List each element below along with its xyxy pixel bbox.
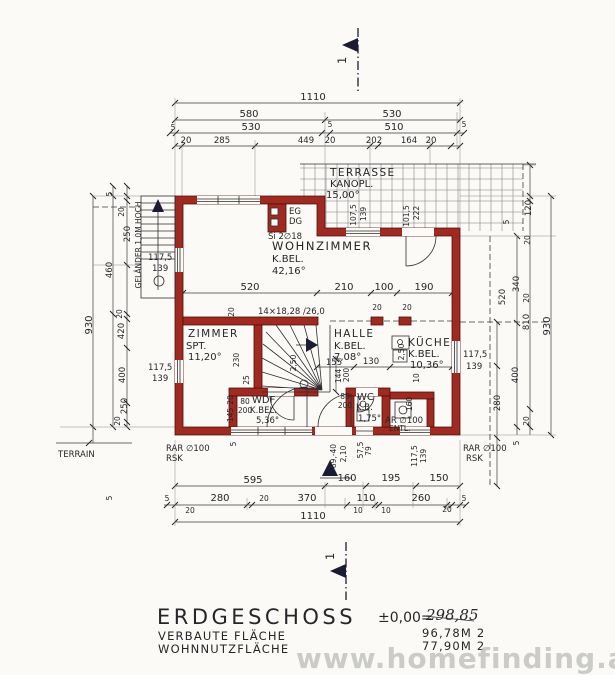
dim-label: 449 [298, 136, 314, 146]
dim-label: 5 [165, 494, 170, 503]
room-label-wohnzimmer: WOHNZIMMER [272, 239, 372, 253]
dim-label: 10 [353, 506, 363, 515]
dim-label: 210 [334, 282, 353, 293]
dim-label: 80 [340, 392, 350, 401]
dim-label: 20 [402, 303, 412, 312]
dim-label: 20 [442, 505, 452, 514]
dim-label: 530 [241, 122, 260, 133]
room-sub-wohnzimmer: K.BEL. [272, 254, 304, 265]
living-area-label: WOHNNUTZFLÄCHE [158, 641, 289, 656]
stair-direction-arrow-icon [306, 338, 318, 352]
dim-label: 460 [105, 262, 115, 278]
dim-label: 5 [462, 494, 467, 503]
railing-symbol [154, 276, 164, 286]
dim-label: 120 [524, 200, 534, 216]
dim-label: 202 [366, 136, 382, 146]
dim-label: 20 [522, 293, 531, 303]
chimney-label-dg: DG [289, 217, 302, 227]
terrain-label: TERRAIN [57, 450, 95, 460]
drain-label: RSK [466, 454, 483, 464]
dim-label: 79 [364, 446, 373, 456]
wall-pier [371, 317, 383, 325]
dim-label: 20 [325, 136, 336, 146]
dim-label: 20 [115, 309, 124, 319]
dim-label: 510 [384, 122, 403, 133]
room-area-wc: 1,75° [358, 414, 381, 424]
dim-label: 139 [466, 362, 482, 372]
built-area-label: VERBAUTE FLÄCHE [158, 628, 286, 643]
level-value-handwritten: 298,85 [425, 606, 479, 624]
dim-label: 280 [210, 493, 229, 504]
dim-label: 200 [338, 401, 353, 410]
dim-label: 530 [382, 109, 401, 120]
section-number: 1 [335, 55, 349, 64]
dim-label: 250 [120, 398, 130, 414]
dim-label: 117,5 [463, 350, 487, 360]
flue-dg [271, 219, 278, 226]
dim-label: 810 [522, 314, 532, 330]
dim-label: 930 [542, 316, 553, 335]
room-sub-kueche: K.BEL. [408, 349, 440, 360]
dim-label: 20 [113, 416, 122, 426]
dim-label: 580 [239, 109, 258, 120]
dim-label: 1110 [300, 92, 325, 103]
floor-plan-page: 1 1 1110 580 530 5 530 5 510 5 20 285 44… [0, 0, 615, 675]
dim-label: 101,5 [402, 205, 411, 227]
dim-label: 20 [185, 506, 195, 515]
dim-label: 100 [374, 282, 393, 293]
interior-wall [254, 325, 262, 392]
dim-label: 155 [326, 358, 342, 368]
dim-label: 200 [342, 368, 351, 383]
dim-label: 20 [372, 303, 382, 312]
interior-wall [427, 399, 434, 427]
dim-label: 2,50 [289, 354, 298, 371]
room-label-zimmer: ZIMMER [188, 328, 239, 340]
dim-label: 117,5 [410, 445, 419, 467]
drain-label: RSK [166, 454, 183, 464]
dim-label: 10 [381, 506, 391, 515]
built-area-value: 96,78M 2 [422, 626, 485, 640]
dim-label: 20 [522, 416, 531, 426]
stair-up-arrow-icon [152, 199, 164, 212]
room-area-wdf: 5,36° [256, 416, 279, 426]
dim-label: 139 [152, 264, 168, 274]
dim-label: 1110 [300, 511, 325, 522]
dim-label: 230 [232, 353, 241, 368]
dim-label: 20 [117, 207, 126, 217]
dim-label: 117,5 [148, 363, 172, 373]
dim-label: 139 [152, 374, 168, 384]
stair-note: 14×18,28 /26,0 [258, 307, 325, 317]
dim-label: 20 [226, 395, 235, 405]
dim-label: 420 [117, 323, 127, 339]
dim-label: 260 [411, 493, 430, 504]
dim-label: 2,10 [339, 445, 348, 462]
dim-label: 117,5 [148, 253, 172, 263]
floor-title: ERDGESCHOSS [157, 605, 356, 629]
dim-label: 110 [356, 493, 375, 504]
dim-label: 107,5 [349, 204, 358, 226]
room-sub-halle: K.BEL. [334, 341, 366, 352]
dim-label: 5 [502, 219, 511, 224]
dim-label: 89,-40 [329, 444, 338, 468]
room-label-kueche: KÜCHE [408, 336, 451, 349]
dim-label: 139 [359, 207, 368, 222]
dim-label: 222 [412, 206, 421, 221]
dim-label: 164 [401, 136, 417, 146]
flue-eg [271, 208, 278, 215]
dim-label: 5 [105, 191, 114, 196]
dim-label: 25 [242, 375, 251, 385]
dim-label: 200 [238, 406, 253, 415]
dim-label: 595 [243, 475, 262, 486]
dim-label: 400 [511, 367, 521, 383]
dim-label: 340 [512, 276, 522, 292]
section-arrow-icon [342, 38, 358, 52]
drain-label: RAR ∅100 [463, 444, 507, 454]
dim-label: 20 [259, 494, 269, 503]
dim-label: 400 [118, 367, 128, 383]
dim-label: 130 [363, 357, 379, 367]
dim-label: 195 [381, 473, 400, 484]
labels: 1110 580 530 5 530 5 510 5 20 285 449 20… [57, 92, 553, 522]
dim-label: 930 [84, 315, 95, 334]
dim-label: 5 [105, 495, 114, 500]
room-sub-zimmer: SPT. [186, 341, 206, 352]
vent-label: ENTL. [389, 424, 411, 433]
dim-label: 20 [426, 136, 437, 146]
dim-label: 520 [498, 289, 508, 305]
room-sub-terrasse: KANOPL. [330, 179, 373, 190]
interior-wall [183, 317, 318, 325]
dim-label: 20 [523, 235, 532, 245]
dim-label: 160 [337, 473, 356, 484]
dim-label: 5 [229, 441, 238, 446]
watermark: www.homefinding.at [296, 642, 615, 675]
room-area-terrasse: 15,00° [326, 190, 360, 201]
dim-label: 370 [297, 493, 316, 504]
section-arrow-icon [330, 564, 346, 578]
dim-label: 80 [240, 397, 250, 406]
dim-label: 250 [123, 226, 133, 242]
dim-label: 139 [419, 449, 428, 464]
dim-label: 280 [493, 395, 503, 411]
room-sub-wc: K.B. [356, 403, 373, 413]
dim-label: 150 [429, 473, 448, 484]
room-label-wdf: WDF [252, 395, 276, 406]
wall-pier [399, 317, 411, 325]
room-label-wc: WC [357, 392, 374, 403]
dim-label: 285 [214, 136, 230, 146]
chimney-label-eg: EG [289, 207, 301, 217]
section-number: 1 [323, 551, 337, 560]
dim-label: 20 [181, 136, 192, 146]
dim-label: 145 [226, 408, 235, 423]
room-sub-wdf: K.BEL. [250, 406, 277, 416]
drain-label: RAR ∅100 [166, 444, 210, 454]
dim-label: 2,50 [397, 343, 406, 360]
dim-label: 520 [240, 282, 259, 293]
dim-label: 190 [414, 282, 433, 293]
room-area-wohnzimmer: 42,16° [272, 266, 306, 277]
dim-label: 160 [405, 397, 414, 412]
dim-label: 10 [412, 373, 421, 383]
railing-note: GELÄNDER 1,0M HOCH [134, 202, 143, 289]
dim-label: 5 [328, 120, 333, 129]
terrace-door-arc [406, 236, 436, 266]
dim-label: 5 [512, 440, 521, 445]
floor-plan-drawing: 1 1 1110 580 530 5 530 5 510 5 20 285 44… [0, 0, 615, 675]
room-label-halle: HALLE [334, 328, 374, 340]
dim-label: 20 [227, 307, 236, 317]
dim-label: 5 [462, 120, 467, 129]
room-area-zimmer: 11,20° [188, 352, 222, 363]
level-prefix: ±0,00= [378, 610, 433, 626]
room-label-terrasse: TERRASSE [329, 167, 396, 179]
room-area-kueche: 10,36° [410, 360, 444, 371]
dim-label: 5 [171, 123, 176, 132]
